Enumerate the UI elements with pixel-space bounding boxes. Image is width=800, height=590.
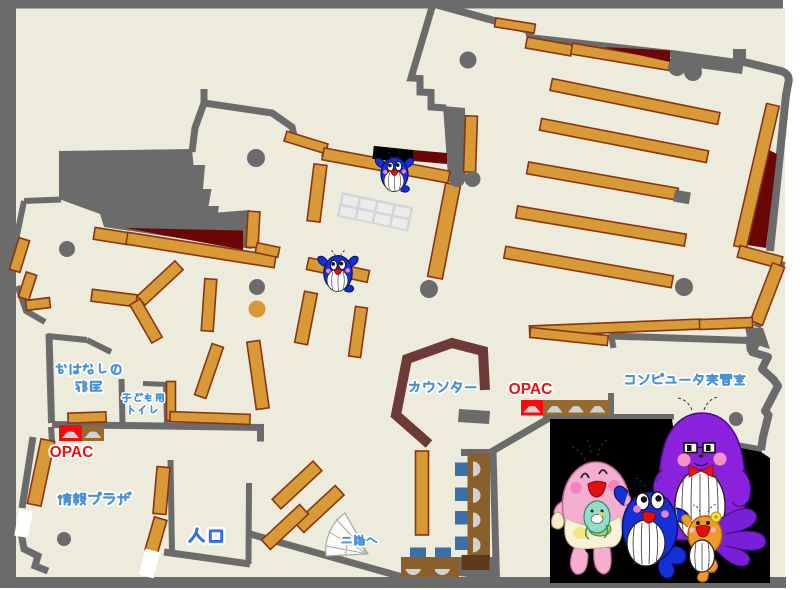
svg-text:OPAC: OPAC xyxy=(50,444,94,461)
svg-text:OPAC: OPAC xyxy=(509,381,553,398)
